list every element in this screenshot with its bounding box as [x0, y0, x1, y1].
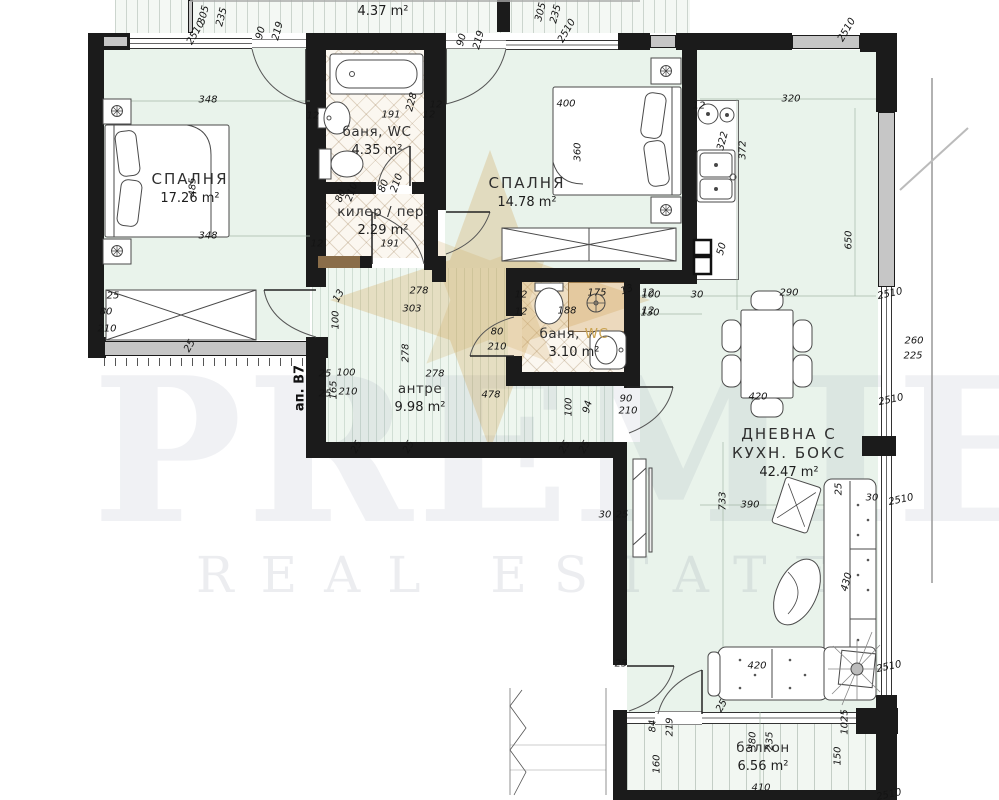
dimension-label: 485 [188, 177, 199, 196]
dimension-label: 191 [380, 239, 399, 250]
dimension-label: 12 [423, 110, 436, 121]
dimension-label: 25 [615, 659, 628, 670]
dimension-label: 380 [748, 731, 759, 750]
dimension-label: 30 [691, 290, 704, 301]
room-label: баня, WC3.10 m² [540, 326, 609, 360]
room-name: баня, WC [343, 124, 412, 141]
wardrobe-bedroom-1 [106, 290, 256, 340]
dimension-label: 25 [107, 291, 120, 302]
dimension-label: 80 [491, 327, 504, 338]
dimension-label: 320 [781, 94, 800, 105]
dimension-label: 188 [557, 306, 576, 317]
dimension-label: 348 [198, 231, 217, 242]
dimension-label: 278 [401, 343, 412, 362]
nightstand [651, 197, 681, 223]
dimension-label: 260 [904, 336, 923, 347]
room-area: 6.56 m² [736, 759, 789, 774]
dimension-label: 303 [402, 304, 421, 315]
dimension-label: 12 [515, 290, 528, 301]
dimension-label: 12 [307, 111, 320, 122]
dimension-label: 160 [652, 754, 663, 773]
dimension-label: 225 [903, 351, 922, 362]
kitchen-sink-icon [697, 150, 736, 202]
dimension-label: 12 [642, 306, 655, 317]
room-area: 14.78 m² [489, 195, 566, 210]
dimension-label: 420 [747, 661, 766, 672]
dimension-label: 25 [319, 389, 332, 400]
room-area: 4.35 m² [343, 143, 412, 158]
dimension-label: 100 [336, 368, 355, 379]
room-area: 9.98 m² [395, 400, 446, 415]
tv-stand [633, 459, 652, 557]
room-label: антре9.98 m² [395, 381, 446, 415]
toilet-icon [535, 283, 563, 324]
dimension-label: 12 [642, 288, 655, 299]
dimension-label: 80 [100, 307, 113, 318]
dimension-label: 191 [381, 110, 400, 121]
dimension-label: 360 [573, 142, 584, 161]
wardrobe-bedroom-2 [502, 228, 676, 261]
dimension-label: 100 [331, 310, 342, 329]
room-area: 3.10 m² [540, 345, 609, 360]
nightstand [103, 239, 131, 264]
room-name-highlight: WC [580, 326, 609, 342]
dimension-label: 84 [648, 720, 659, 733]
dimension-label: 25 [834, 483, 845, 496]
room-label: баня, WC4.35 m² [343, 124, 412, 158]
dimension-label: 235 [765, 731, 776, 750]
room-area: 42.47 m² [732, 465, 846, 480]
room-name: ДНЕВНА С КУХН. БОКС [732, 425, 846, 463]
room-name: балкон [736, 740, 789, 757]
dimension-label: 90 [620, 394, 633, 405]
room-name: баня, WC [540, 326, 609, 343]
kitchen-cabinets [694, 240, 711, 274]
room-label: 4.37 m² [358, 2, 409, 19]
dimension-label: 210 [338, 387, 357, 398]
dimension-label: 348 [198, 95, 217, 106]
dimension-label: 12 [693, 101, 706, 112]
coffee-table [764, 552, 830, 632]
floorplan-canvas: PREMIER REAL ESTATE [0, 0, 999, 800]
dimension-label: 219 [665, 717, 676, 736]
dimension-label: 210 [618, 406, 637, 417]
bathtub-icon [330, 54, 423, 94]
dimension-label: 12 [430, 100, 443, 111]
dimension-label: 25 [319, 369, 332, 380]
dimension-label: 372 [738, 140, 749, 159]
floor-cushion [771, 477, 821, 534]
dimension-label: 25 [616, 510, 629, 521]
dimension-label: 210 [97, 324, 116, 335]
dimension-label: 400 [556, 99, 575, 110]
room-area: 2.29 m² [337, 223, 429, 238]
dimension-label: 12 [311, 239, 324, 250]
nightstand [651, 58, 681, 84]
dimension-label: 30 [866, 493, 879, 504]
room-label: килер / пер.2.29 m² [337, 204, 429, 238]
dimension-label: 420 [748, 392, 767, 403]
dimension-label: 410 [751, 783, 770, 794]
dimension-label: 210 [487, 342, 506, 353]
room-label: балкон6.56 m² [736, 740, 789, 774]
room-label: ДНЕВНА С КУХН. БОКС42.47 m² [732, 425, 846, 480]
dimension-label: 175 [587, 288, 606, 299]
room-name: антре [395, 381, 446, 398]
nightstand [103, 99, 131, 124]
dimension-label: 30 [599, 510, 612, 521]
room-area: 4.37 m² [358, 4, 409, 19]
dimension-label: 733 [718, 491, 729, 510]
dimension-label: 290 [779, 288, 798, 299]
room-label: СПАЛНЯ14.78 m² [489, 174, 566, 210]
dimension-label: 650 [844, 230, 855, 249]
dimension-label: 478 [481, 390, 500, 401]
room-name: СПАЛНЯ [489, 174, 566, 193]
dimension-label: 100 [564, 397, 575, 416]
room-name: килер / пер. [337, 204, 429, 221]
dimension-label: 1025 [840, 709, 851, 734]
apartment-number-label: ап. B7 [293, 365, 308, 411]
dimension-label: 278 [425, 369, 444, 380]
dimension-label: 390 [740, 500, 759, 511]
dimension-label: 150 [833, 746, 844, 765]
stairwell [510, 688, 606, 795]
dimension-label: 12 [515, 307, 528, 318]
dimension-label: 278 [409, 286, 428, 297]
